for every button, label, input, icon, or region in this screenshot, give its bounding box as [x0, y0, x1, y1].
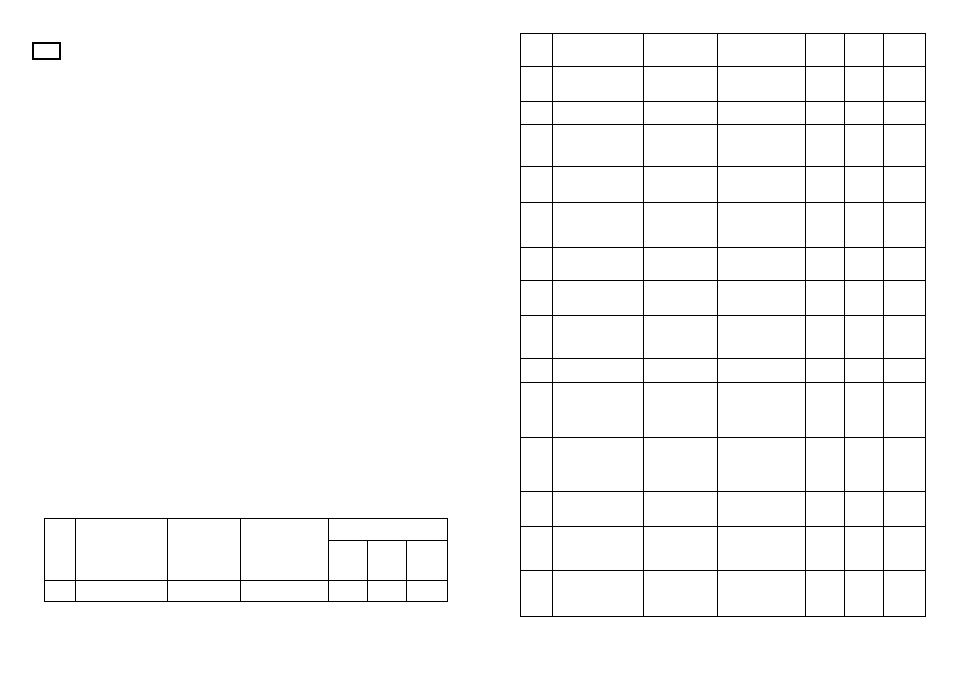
page	[0, 0, 954, 674]
parts-cell-r15-c6	[845, 571, 883, 616]
parts-cell-r14-c5	[806, 527, 844, 570]
parts-cell-r10-c6	[845, 359, 883, 382]
parts-cell-r7-c2	[553, 248, 643, 280]
parts-cell-r3-c3	[644, 102, 717, 124]
parts-cell-r9-c5	[806, 316, 844, 358]
parts-cell-r6-c4	[718, 203, 805, 247]
parts-cell-r11-c2	[553, 383, 643, 437]
parts-cell-r3-c2	[553, 102, 643, 124]
parts-cell-r14-c4	[718, 527, 805, 570]
parts-cell-r12-c3	[644, 438, 717, 491]
parts-cell-r12-c2	[553, 438, 643, 491]
parts-cell-r4-c4	[718, 125, 805, 166]
parts-cell-r8-c3	[644, 281, 717, 315]
parts-cell-r13-c1	[521, 492, 552, 526]
parts-cell-r5-c2	[553, 167, 643, 202]
parts-cell-r8-c7	[884, 281, 925, 315]
parts-cell-r4-c2	[553, 125, 643, 166]
parts-cell-r1-c7	[884, 34, 925, 66]
parts-cell-r1-c4	[718, 34, 805, 66]
parts-cell-r5-c5	[806, 167, 844, 202]
parts-cell-r15-c7	[884, 571, 925, 616]
parts-cell-r4-c1	[521, 125, 552, 166]
parts-cell-r14-c7	[884, 527, 925, 570]
parts-cell-r12-c7	[884, 438, 925, 491]
parts-cell-r8-c1	[521, 281, 552, 315]
parts-cell-r15-c1	[521, 571, 552, 616]
parts-cell-r1-c2	[553, 34, 643, 66]
parts-cell-r8-c6	[845, 281, 883, 315]
parts-cell-r9-c3	[644, 316, 717, 358]
parts-cell-r7-c1	[521, 248, 552, 280]
parts-cell-r15-c3	[644, 571, 717, 616]
parts-cell-r3-c1	[521, 102, 552, 124]
parts-cell-r10-c5	[806, 359, 844, 382]
parts-cell-r3-c5	[806, 102, 844, 124]
parts-cell-r4-c5	[806, 125, 844, 166]
parts-cell-r11-c1	[521, 383, 552, 437]
title-block-group-header	[329, 519, 447, 540]
parts-cell-r4-c3	[644, 125, 717, 166]
parts-cell-r13-c7	[884, 492, 925, 526]
title-block-table	[44, 518, 448, 602]
parts-cell-r12-c1	[521, 438, 552, 491]
parts-cell-r9-c6	[845, 316, 883, 358]
title-block-header-col3	[168, 519, 240, 580]
title-block-data-col5	[329, 581, 367, 601]
parts-cell-r2-c2	[553, 67, 643, 101]
parts-cell-r2-c4	[718, 67, 805, 101]
parts-cell-r15-c2	[553, 571, 643, 616]
parts-cell-r7-c3	[644, 248, 717, 280]
parts-cell-r13-c6	[845, 492, 883, 526]
parts-cell-r5-c1	[521, 167, 552, 202]
parts-cell-r1-c5	[806, 34, 844, 66]
parts-cell-r7-c6	[845, 248, 883, 280]
parts-cell-r2-c1	[521, 67, 552, 101]
parts-cell-r14-c2	[553, 527, 643, 570]
parts-cell-r10-c1	[521, 359, 552, 382]
corner-box	[32, 42, 61, 60]
parts-list-table	[520, 33, 926, 617]
title-block-data-col4	[241, 581, 328, 601]
parts-cell-r3-c6	[845, 102, 883, 124]
parts-cell-r6-c2	[553, 203, 643, 247]
parts-cell-r9-c1	[521, 316, 552, 358]
parts-cell-r14-c3	[644, 527, 717, 570]
title-block-header-col2	[76, 519, 167, 580]
parts-cell-r9-c7	[884, 316, 925, 358]
parts-cell-r8-c4	[718, 281, 805, 315]
title-block-header-col4	[241, 519, 328, 580]
title-block-subheader-2	[368, 541, 406, 580]
parts-cell-r10-c2	[553, 359, 643, 382]
parts-cell-r12-c6	[845, 438, 883, 491]
parts-cell-r14-c1	[521, 527, 552, 570]
parts-cell-r10-c3	[644, 359, 717, 382]
parts-cell-r8-c2	[553, 281, 643, 315]
parts-cell-r11-c4	[718, 383, 805, 437]
parts-cell-r1-c6	[845, 34, 883, 66]
parts-cell-r7-c4	[718, 248, 805, 280]
parts-cell-r6-c7	[884, 203, 925, 247]
parts-cell-r13-c2	[553, 492, 643, 526]
parts-cell-r5-c4	[718, 167, 805, 202]
title-block-subheader-1	[329, 541, 367, 580]
parts-cell-r3-c4	[718, 102, 805, 124]
title-block-data-col1	[45, 581, 75, 601]
title-block-data-col3	[168, 581, 240, 601]
parts-cell-r9-c4	[718, 316, 805, 358]
parts-cell-r15-c4	[718, 571, 805, 616]
parts-cell-r1-c1	[521, 34, 552, 66]
title-block-data-col6	[368, 581, 406, 601]
parts-cell-r15-c5	[806, 571, 844, 616]
parts-cell-r6-c6	[845, 203, 883, 247]
title-block-header-col1	[45, 519, 75, 580]
parts-cell-r14-c6	[845, 527, 883, 570]
parts-cell-r2-c7	[884, 67, 925, 101]
parts-cell-r13-c3	[644, 492, 717, 526]
parts-cell-r11-c5	[806, 383, 844, 437]
parts-cell-r12-c5	[806, 438, 844, 491]
parts-cell-r6-c1	[521, 203, 552, 247]
parts-cell-r6-c3	[644, 203, 717, 247]
parts-cell-r11-c7	[884, 383, 925, 437]
parts-cell-r3-c7	[884, 102, 925, 124]
parts-cell-r12-c4	[718, 438, 805, 491]
parts-cell-r11-c6	[845, 383, 883, 437]
title-block-data-col7	[407, 581, 447, 601]
parts-cell-r7-c7	[884, 248, 925, 280]
parts-cell-r5-c3	[644, 167, 717, 202]
parts-cell-r5-c7	[884, 167, 925, 202]
parts-cell-r5-c6	[845, 167, 883, 202]
parts-cell-r1-c3	[644, 34, 717, 66]
parts-cell-r13-c4	[718, 492, 805, 526]
parts-cell-r7-c5	[806, 248, 844, 280]
parts-cell-r6-c5	[806, 203, 844, 247]
title-block-data-col2	[76, 581, 167, 601]
parts-cell-r13-c5	[806, 492, 844, 526]
parts-cell-r2-c6	[845, 67, 883, 101]
parts-cell-r4-c6	[845, 125, 883, 166]
title-block-subheader-3	[407, 541, 447, 580]
parts-cell-r11-c3	[644, 383, 717, 437]
parts-cell-r2-c3	[644, 67, 717, 101]
parts-cell-r10-c4	[718, 359, 805, 382]
parts-cell-r8-c5	[806, 281, 844, 315]
parts-cell-r10-c7	[884, 359, 925, 382]
parts-cell-r2-c5	[806, 67, 844, 101]
parts-cell-r9-c2	[553, 316, 643, 358]
parts-cell-r4-c7	[884, 125, 925, 166]
